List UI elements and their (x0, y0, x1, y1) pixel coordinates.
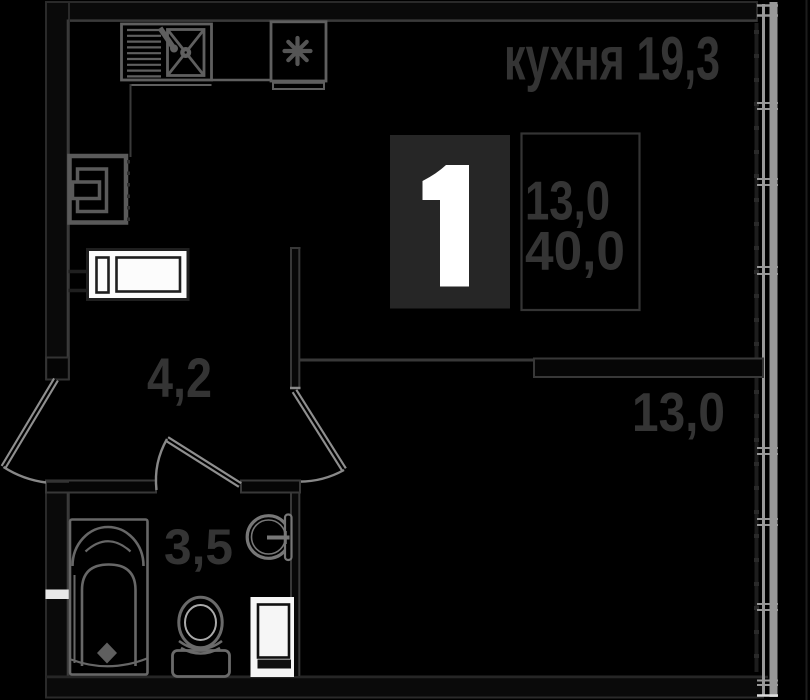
svg-text:13,0: 13,0 (632, 381, 725, 443)
svg-text:40,0: 40,0 (525, 220, 625, 282)
svg-text:4,2: 4,2 (147, 346, 212, 409)
svg-text:3,5: 3,5 (164, 519, 233, 575)
svg-text:кухня 19,3: кухня 19,3 (504, 25, 720, 93)
